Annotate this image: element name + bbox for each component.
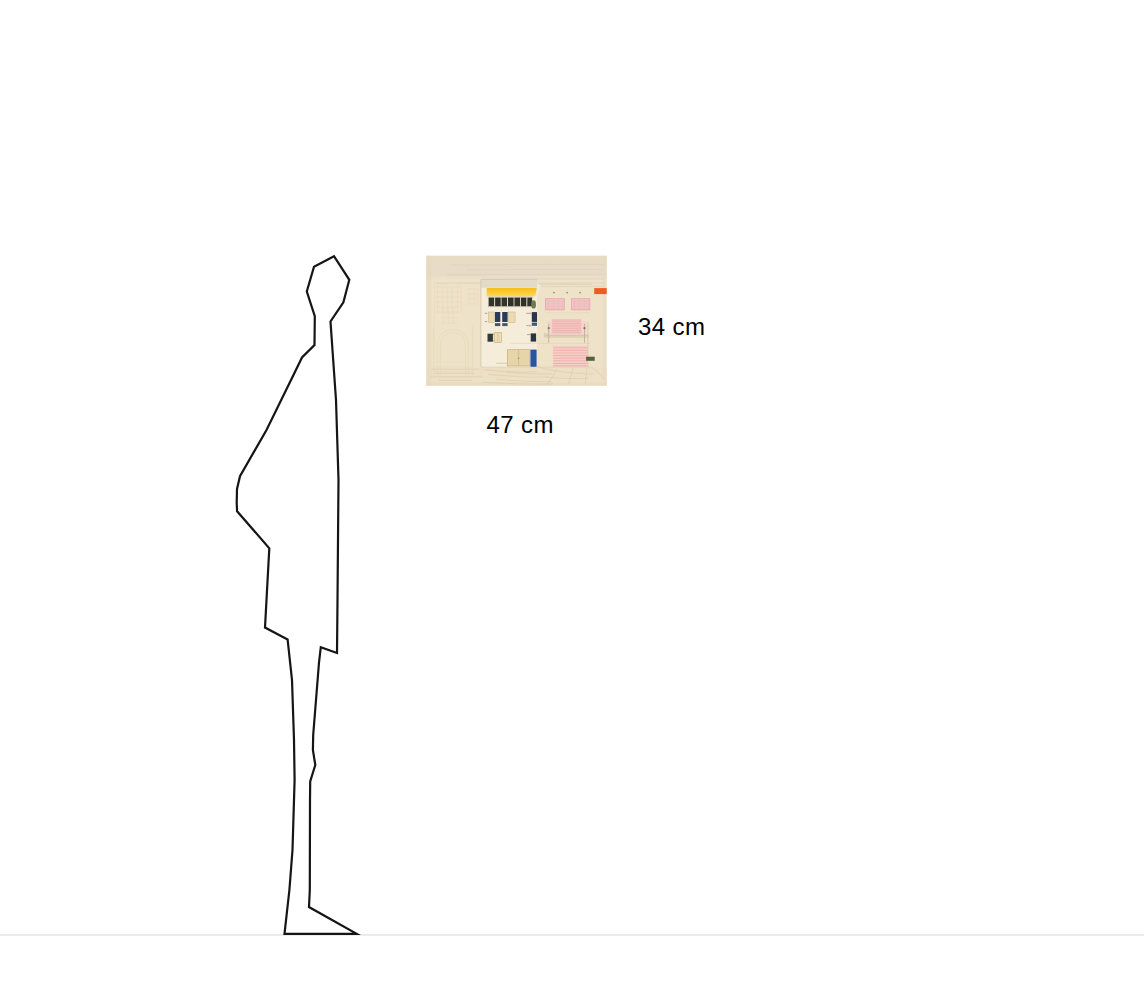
svg-text:34 cm: 34 cm [638,313,705,340]
svg-text:47 cm: 47 cm [487,411,554,438]
